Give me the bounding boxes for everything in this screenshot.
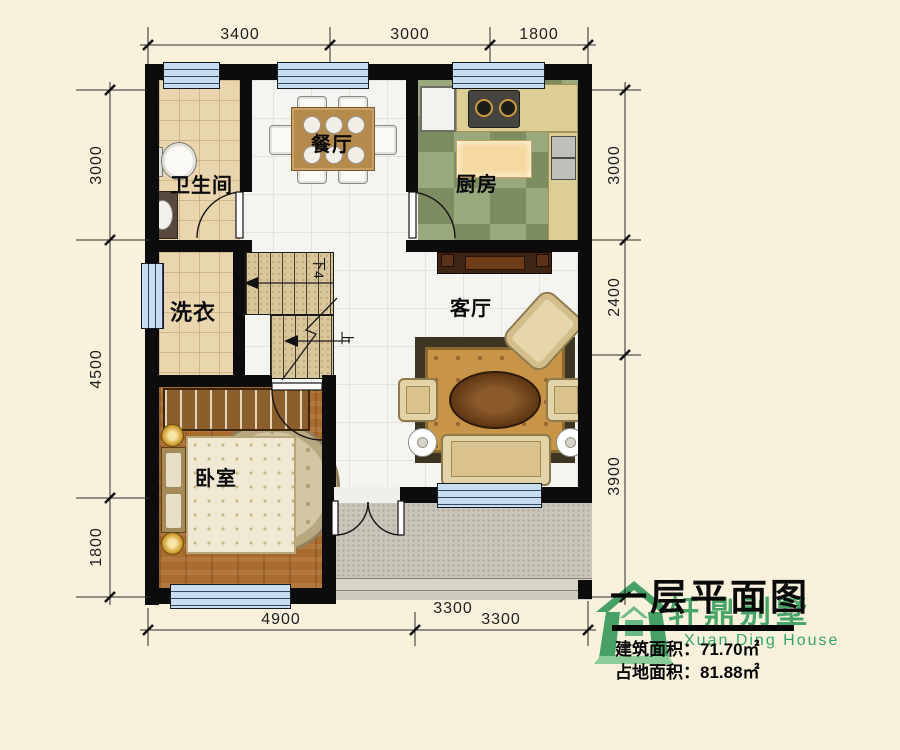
brand-name: 轩鼎别墅 [668,597,812,628]
dimension-label-left: 3000 [89,120,105,210]
lamp-table [408,428,437,457]
wardrobe [163,388,310,431]
bed-pillow [165,493,182,529]
kitchen-island [456,140,532,178]
footprint-area-text: 占地面积：81.88㎡ [615,664,760,683]
stairs-lower-flight [270,315,334,379]
sofa-seat [451,441,541,477]
room-label-bathroom: 卫生间 [170,176,233,196]
armchair-left-seat [406,386,430,414]
fridge [420,86,456,132]
stair-label-down: 下4 [312,257,326,289]
wall-kitchen-west [406,80,418,192]
dimension-label-top: 3000 [365,27,455,43]
tv-side-table [441,254,454,267]
room-label-living: 客厅 [450,299,492,319]
entry-opening [334,487,400,503]
plate [325,116,343,134]
plate [303,116,321,134]
dimension-label-right: 3000 [607,120,623,210]
window-dining [277,62,369,89]
wall-bathroom-south [145,240,252,252]
stair-label-up: 上 [340,331,354,349]
dimension-label-bottom: 4900 [236,612,326,628]
bedside-lamp [161,424,184,447]
terrace-step [336,590,592,600]
stove-burner [499,99,517,117]
bed-quilt [186,436,296,554]
coffee-table [449,371,541,429]
dimension-label-left: 4500 [89,324,105,414]
window-kitchen [452,62,545,89]
window-living [437,483,542,508]
room-label-kitchen: 厨房 [456,175,498,195]
stove-burner [475,99,493,117]
dimension-label-top: 1800 [494,27,584,43]
wall-kitchen-south [406,240,592,252]
bed-pillow [165,452,182,488]
room-label-bedroom: 卧室 [195,469,237,489]
dimension-label-partial: 3300 [424,601,482,613]
wall-bedroom-north [145,375,272,387]
room-label-laundry: 洗衣 [170,302,216,324]
dimension-label-bottom: 3300 [456,612,546,628]
wall-exterior-right [578,64,592,503]
terrace [336,503,592,578]
window-bathroom [163,62,220,89]
terrace-pillar [578,580,592,599]
dimension-label-right: 3900 [607,431,623,521]
dimension-label-top: 3400 [195,27,285,43]
window-bedroom [170,584,291,609]
tv [465,256,525,270]
floor-plan-canvas: 3400 3000 1800 3000 4500 1800 3000 2400 … [0,0,900,750]
wall-exterior-left [145,64,159,605]
building-area-text: 建筑面积：71.70㎡ [615,641,760,660]
wall-stairs-west [233,252,245,377]
kitchen-sink-divider [551,157,576,159]
armchair-right-seat [554,386,578,414]
room-label-dining: 餐厅 [311,135,353,155]
dimension-label-left: 1800 [89,502,105,592]
tv-side-table [536,254,549,267]
wall-bathroom-east [240,80,252,192]
dimension-label-right: 2400 [607,252,623,342]
window-laundry [141,263,164,329]
plate [347,116,365,134]
bedside-lamp [161,532,184,555]
